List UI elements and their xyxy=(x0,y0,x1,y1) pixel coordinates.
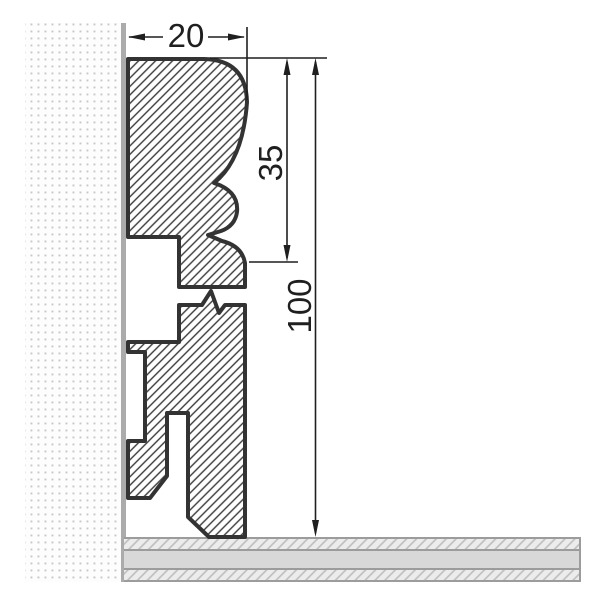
floor-top-border xyxy=(124,537,581,539)
floor-layer-line-1 xyxy=(124,549,581,551)
floor-right-edge xyxy=(579,537,581,582)
wall xyxy=(25,23,126,582)
floor-top-hatch-layer xyxy=(124,539,581,549)
dimension-label-width: 20 xyxy=(168,17,205,54)
floor-middle-layer xyxy=(124,551,581,568)
wall-edge-line xyxy=(121,23,126,582)
wall-surface xyxy=(25,23,121,582)
floor-bottom-hatch-layer xyxy=(124,570,581,580)
technical-drawing-canvas: 20 35 100 xyxy=(0,0,604,604)
floor-bottom-border xyxy=(124,580,581,582)
floor xyxy=(124,537,581,582)
dimension-label-upper-height: 35 xyxy=(252,145,289,182)
dimension-label-total-height: 100 xyxy=(281,278,318,333)
skirting-profile-drawing: 20 35 100 xyxy=(0,0,604,604)
floor-layer-line-2 xyxy=(124,568,581,570)
